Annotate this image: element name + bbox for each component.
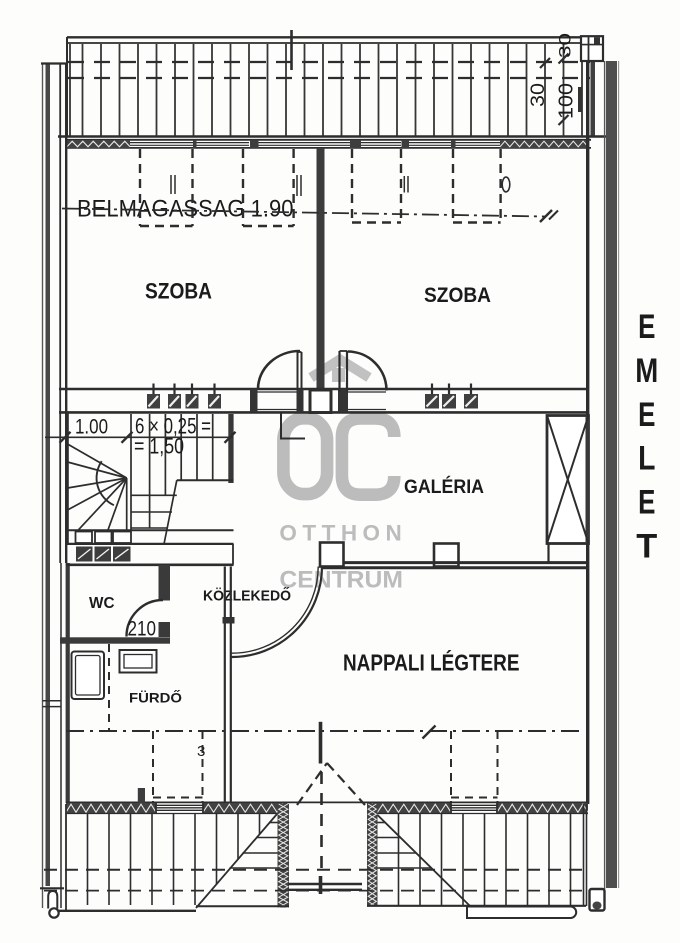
svg-text:= 1,50: = 1,50 [134,434,184,459]
svg-text:3: 3 [197,743,205,760]
svg-text:E: E [638,396,655,434]
svg-text:100: 100 [555,83,578,119]
svg-text:T: T [636,528,657,566]
svg-text:GALÉRIA: GALÉRIA [404,476,484,498]
svg-text:CENTRUM: CENTRUM [279,567,403,594]
svg-text:SZOBA: SZOBA [424,284,491,307]
svg-text:30: 30 [556,33,575,58]
svg-text:FÜRDŐ: FÜRDŐ [129,689,182,706]
svg-text:M: M [635,352,658,390]
svg-text:NAPPALI LÉGTERE: NAPPALI LÉGTERE [343,649,520,676]
svg-text:E: E [638,308,655,346]
svg-text:WC: WC [89,595,115,612]
svg-text:1.00: 1.00 [75,416,108,439]
svg-text:BELMAGASSAG 1.90: BELMAGASSAG 1.90 [77,196,294,223]
svg-text:210: 210 [128,618,157,641]
svg-text:KÖZLEKEDŐ: KÖZLEKEDŐ [203,587,291,605]
svg-text:L: L [638,440,655,478]
svg-text:30: 30 [528,83,549,107]
svg-text:SZOBA: SZOBA [145,279,212,304]
svg-text:E: E [638,484,655,522]
